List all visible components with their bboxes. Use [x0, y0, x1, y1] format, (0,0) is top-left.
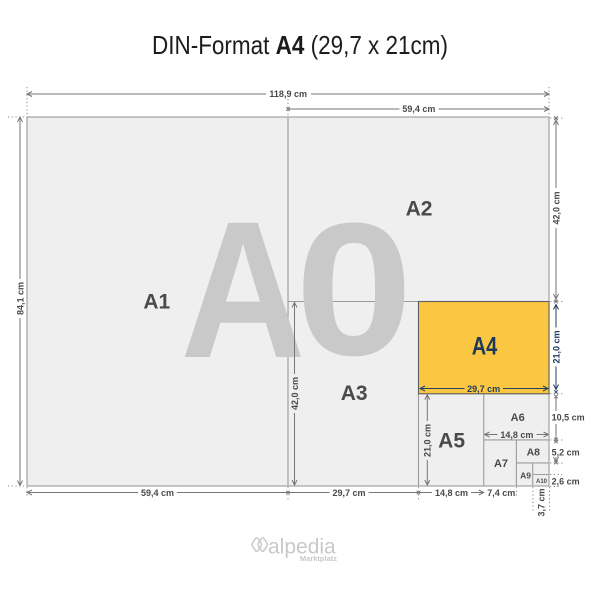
svg-text:42,0 cm: 42,0 cm	[551, 191, 561, 224]
svg-text:29,7 cm: 29,7 cm	[467, 384, 500, 394]
svg-text:14,8 cm: 14,8 cm	[435, 488, 468, 498]
svg-text:10,5 cm: 10,5 cm	[552, 412, 585, 422]
svg-text:DIN-Format A4 (29,7 x 21cm): DIN-Format A4 (29,7 x 21cm)	[152, 30, 448, 60]
svg-text:3,7 cm: 3,7 cm	[537, 488, 547, 516]
svg-text:A6: A6	[511, 412, 525, 424]
svg-text:A10: A10	[536, 479, 548, 485]
svg-text:A1: A1	[143, 290, 170, 313]
svg-text:A8: A8	[527, 447, 541, 459]
svg-text:42,0 cm: 42,0 cm	[290, 377, 300, 410]
svg-text:21,0 cm: 21,0 cm	[423, 424, 433, 457]
svg-text:A7: A7	[494, 458, 508, 470]
svg-text:29,7 cm: 29,7 cm	[332, 488, 365, 498]
svg-text:A2: A2	[406, 198, 433, 221]
svg-text:118,9 cm: 118,9 cm	[269, 89, 307, 99]
svg-text:84,1 cm: 84,1 cm	[15, 282, 25, 315]
svg-text:7,4 cm: 7,4 cm	[487, 488, 515, 498]
svg-text:59,4 cm: 59,4 cm	[141, 488, 174, 498]
svg-text:59,4 cm: 59,4 cm	[402, 104, 435, 114]
svg-text:A9: A9	[520, 471, 531, 481]
svg-text:2,6 cm: 2,6 cm	[552, 476, 580, 486]
svg-text:A3: A3	[341, 382, 368, 405]
svg-text:14,8 cm: 14,8 cm	[500, 430, 533, 440]
svg-text:Marktplatz: Marktplatz	[300, 554, 337, 563]
svg-text:A: A	[181, 181, 306, 399]
svg-text:A5: A5	[438, 429, 465, 452]
svg-text:21,0 cm: 21,0 cm	[551, 330, 561, 363]
svg-text:5,2 cm: 5,2 cm	[552, 447, 580, 457]
svg-text:A4: A4	[472, 333, 498, 361]
svg-text:0: 0	[295, 185, 413, 396]
